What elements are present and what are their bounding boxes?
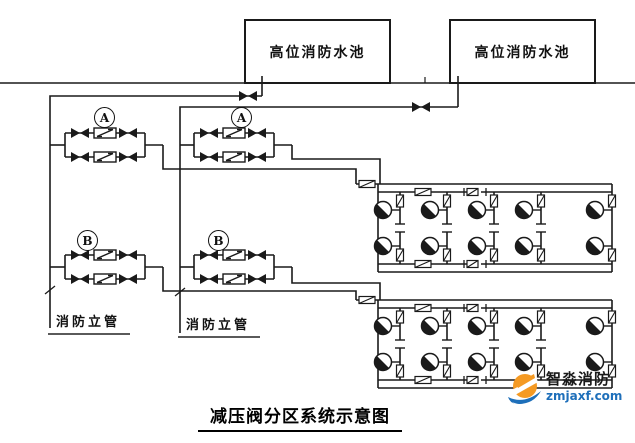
reducing-valve-zoning-schematic: 高位消防水池 高位消防水池 A A B B 消防立管 消防立管 减压阀分区系统示… bbox=[0, 0, 635, 443]
zone-feed-pipes bbox=[163, 145, 380, 300]
prv-group-a-left bbox=[50, 128, 163, 162]
prv-group-b-left bbox=[50, 250, 163, 284]
zhimiao-logo-icon bbox=[506, 371, 544, 409]
upper-zone-block bbox=[356, 181, 616, 273]
valve-group-badge-a-left: A bbox=[94, 107, 115, 128]
prv-group-a-right bbox=[180, 128, 292, 162]
watermark: 智淼消防 zmjaxf.com bbox=[506, 371, 622, 409]
tank-label-2: 高位消防水池 bbox=[450, 20, 595, 83]
tank-label-1: 高位消防水池 bbox=[245, 20, 390, 83]
diagram-title: 减压阀分区系统示意图 bbox=[198, 402, 402, 432]
valve-group-badge-a-right: A bbox=[231, 107, 252, 128]
valve-group-badge-b-right: B bbox=[208, 230, 229, 251]
standpipe-label-1: 消防立管 bbox=[48, 311, 130, 335]
watermark-name: 智淼消防 bbox=[546, 371, 622, 388]
prv-group-b-right bbox=[180, 250, 292, 284]
supply-main-2 bbox=[175, 76, 458, 333]
standpipe-label-2: 消防立管 bbox=[178, 314, 260, 338]
valve-group-badge-b-left: B bbox=[77, 230, 98, 251]
watermark-url: zmjaxf.com bbox=[546, 390, 622, 403]
